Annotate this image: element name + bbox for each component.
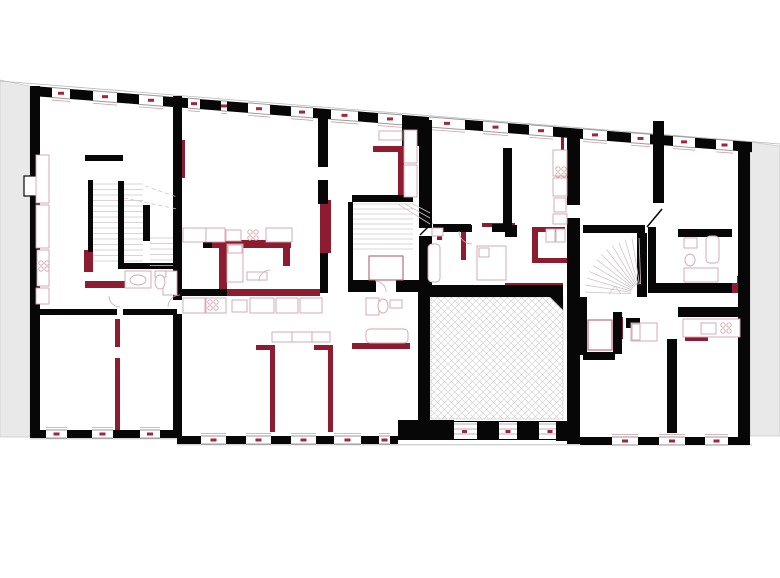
facade-pier [508, 123, 529, 135]
fixture [247, 272, 267, 280]
fixture [312, 332, 330, 342]
fixture [292, 332, 312, 342]
veranda-pier [517, 421, 539, 440]
fixture [300, 298, 322, 313]
wall [118, 263, 177, 269]
door-leaf [647, 209, 662, 227]
hob-burner [248, 236, 252, 240]
wall [398, 420, 454, 440]
facade-pier [390, 436, 398, 444]
window-marker [54, 433, 60, 436]
facade-pier [695, 138, 716, 150]
wall [348, 202, 353, 282]
window-marker [548, 430, 553, 433]
sanitary-fixture [130, 275, 146, 285]
fixture [553, 150, 567, 176]
fixture [554, 198, 566, 212]
window-marker [256, 107, 262, 110]
fixture [183, 298, 205, 313]
facade-pier [200, 99, 221, 111]
window-marker [444, 122, 450, 125]
altered-wall [227, 289, 320, 296]
fixture [36, 205, 49, 248]
fixture [432, 228, 443, 236]
altered-wall [320, 200, 331, 253]
fixture [276, 298, 298, 313]
fixture [404, 130, 417, 163]
bathtub [366, 329, 408, 343]
altered-wall [352, 343, 410, 349]
facade-pier [270, 105, 291, 117]
fixture [553, 178, 567, 196]
facade-pier [685, 437, 705, 445]
wall [580, 297, 587, 355]
window-marker [714, 440, 720, 443]
wall [653, 121, 664, 203]
facade-pier [638, 437, 659, 445]
altered-wall [532, 227, 538, 263]
sanitary-fixture [685, 254, 695, 266]
wall [88, 180, 93, 252]
neighbor-building-right [750, 142, 780, 436]
altered-wall [85, 281, 125, 288]
sanitary-fixture [155, 275, 165, 289]
window-marker [382, 439, 388, 442]
facade-pier [580, 437, 612, 445]
fixture [479, 248, 489, 257]
bathtub [706, 236, 719, 263]
bathtub [428, 244, 440, 282]
facade-pier [271, 436, 291, 444]
floor-plan-svg [0, 0, 780, 578]
fixture [553, 214, 567, 224]
door-swing [375, 281, 386, 292]
wall [613, 312, 622, 354]
window-marker [592, 133, 598, 136]
wall [648, 227, 656, 283]
window-marker [301, 439, 307, 442]
fixture [684, 238, 697, 248]
wall [180, 289, 227, 296]
facade-pier [67, 430, 92, 438]
stair-tread [585, 292, 631, 294]
facade-pier [226, 436, 246, 444]
facade-pier [361, 436, 379, 444]
wall [85, 155, 123, 161]
facade-pier [113, 430, 140, 438]
altered-wall [398, 146, 404, 200]
fixture [366, 298, 379, 315]
neighbor-building-left [0, 80, 30, 437]
window-marker [256, 439, 262, 442]
window-marker [58, 92, 64, 95]
stair-tread [601, 254, 634, 287]
wall [738, 142, 750, 444]
wall [567, 130, 580, 205]
wall [583, 352, 615, 360]
lift-shaft [369, 256, 403, 280]
window-marker [100, 433, 106, 436]
window-marker [387, 117, 393, 120]
window-marker [506, 430, 511, 433]
altered-wall [115, 319, 120, 347]
wall [143, 205, 150, 241]
wall [505, 225, 517, 237]
altered-wall [328, 348, 333, 432]
wall [348, 280, 376, 292]
window-marker [345, 439, 351, 442]
fixture [684, 268, 718, 282]
wall [567, 218, 580, 444]
facade-pier [465, 120, 483, 131]
fixture [266, 228, 292, 242]
wall [318, 180, 328, 204]
window-marker [221, 104, 227, 107]
furniture-fixtures [36, 130, 740, 350]
fixture [206, 228, 225, 242]
wall [118, 181, 124, 268]
fixture [36, 288, 49, 304]
fixture [404, 165, 417, 197]
altered-wall [219, 248, 227, 290]
window-marker [681, 140, 687, 143]
window-marker [669, 440, 675, 443]
altered-wall [270, 348, 275, 432]
facade-pier [177, 436, 201, 444]
window-marker [493, 126, 499, 129]
stair-dashed-line [145, 186, 177, 197]
facade-pier [316, 436, 334, 444]
wall [667, 339, 677, 433]
facade-pier [70, 89, 93, 101]
facade-pier [117, 93, 139, 105]
fixture [390, 300, 402, 308]
fixture [632, 324, 640, 340]
wall [123, 309, 177, 315]
window-marker [638, 137, 644, 140]
facade-pier [358, 111, 378, 123]
altered-wall [532, 258, 573, 263]
fixture [183, 228, 206, 242]
wall [320, 253, 328, 293]
window-marker [191, 102, 197, 105]
stair-dashed-line [124, 198, 177, 209]
altered-wall [115, 358, 120, 430]
wall [33, 309, 117, 315]
wall [648, 283, 732, 293]
wall [678, 307, 740, 317]
altered-wall [461, 232, 466, 260]
courtyard-hatch [431, 297, 563, 419]
window-marker [102, 95, 108, 98]
fixture [250, 298, 274, 313]
lift-shaft [588, 320, 612, 350]
door-swing [109, 296, 120, 307]
wall [583, 225, 645, 233]
hob-burner [248, 230, 252, 234]
fixture [272, 332, 292, 342]
courtyard [431, 297, 563, 419]
fixture [546, 229, 555, 242]
fixture [226, 230, 241, 241]
sanitary-fixture [378, 299, 388, 313]
wall [396, 280, 430, 292]
altered-wall [84, 250, 93, 272]
window-marker [342, 114, 348, 117]
wall [678, 229, 732, 237]
facade-pier [607, 131, 631, 143]
wall [173, 314, 182, 436]
wall [418, 297, 430, 421]
fixture [36, 155, 49, 203]
wall [503, 148, 512, 232]
window-marker [211, 439, 217, 442]
window-marker [148, 99, 154, 102]
fixture [379, 131, 402, 140]
window-marker [538, 129, 544, 132]
hob-burner [254, 236, 258, 240]
facade-pier [227, 101, 248, 113]
wall [455, 225, 472, 232]
altered-wall [283, 240, 290, 266]
wall [318, 113, 328, 167]
wall [637, 233, 647, 297]
window-marker [722, 144, 728, 147]
hob-burner [254, 230, 258, 234]
window-marker [622, 440, 628, 443]
window-marker [299, 111, 305, 114]
floor-plan-page [0, 0, 780, 578]
fixture [228, 245, 242, 253]
window-marker [462, 430, 467, 433]
fixture [701, 323, 716, 334]
veranda-pier [477, 421, 499, 440]
window-marker [147, 433, 153, 436]
fixture [232, 300, 247, 312]
wall [418, 285, 563, 297]
fixture [556, 229, 565, 242]
wall [173, 96, 182, 300]
